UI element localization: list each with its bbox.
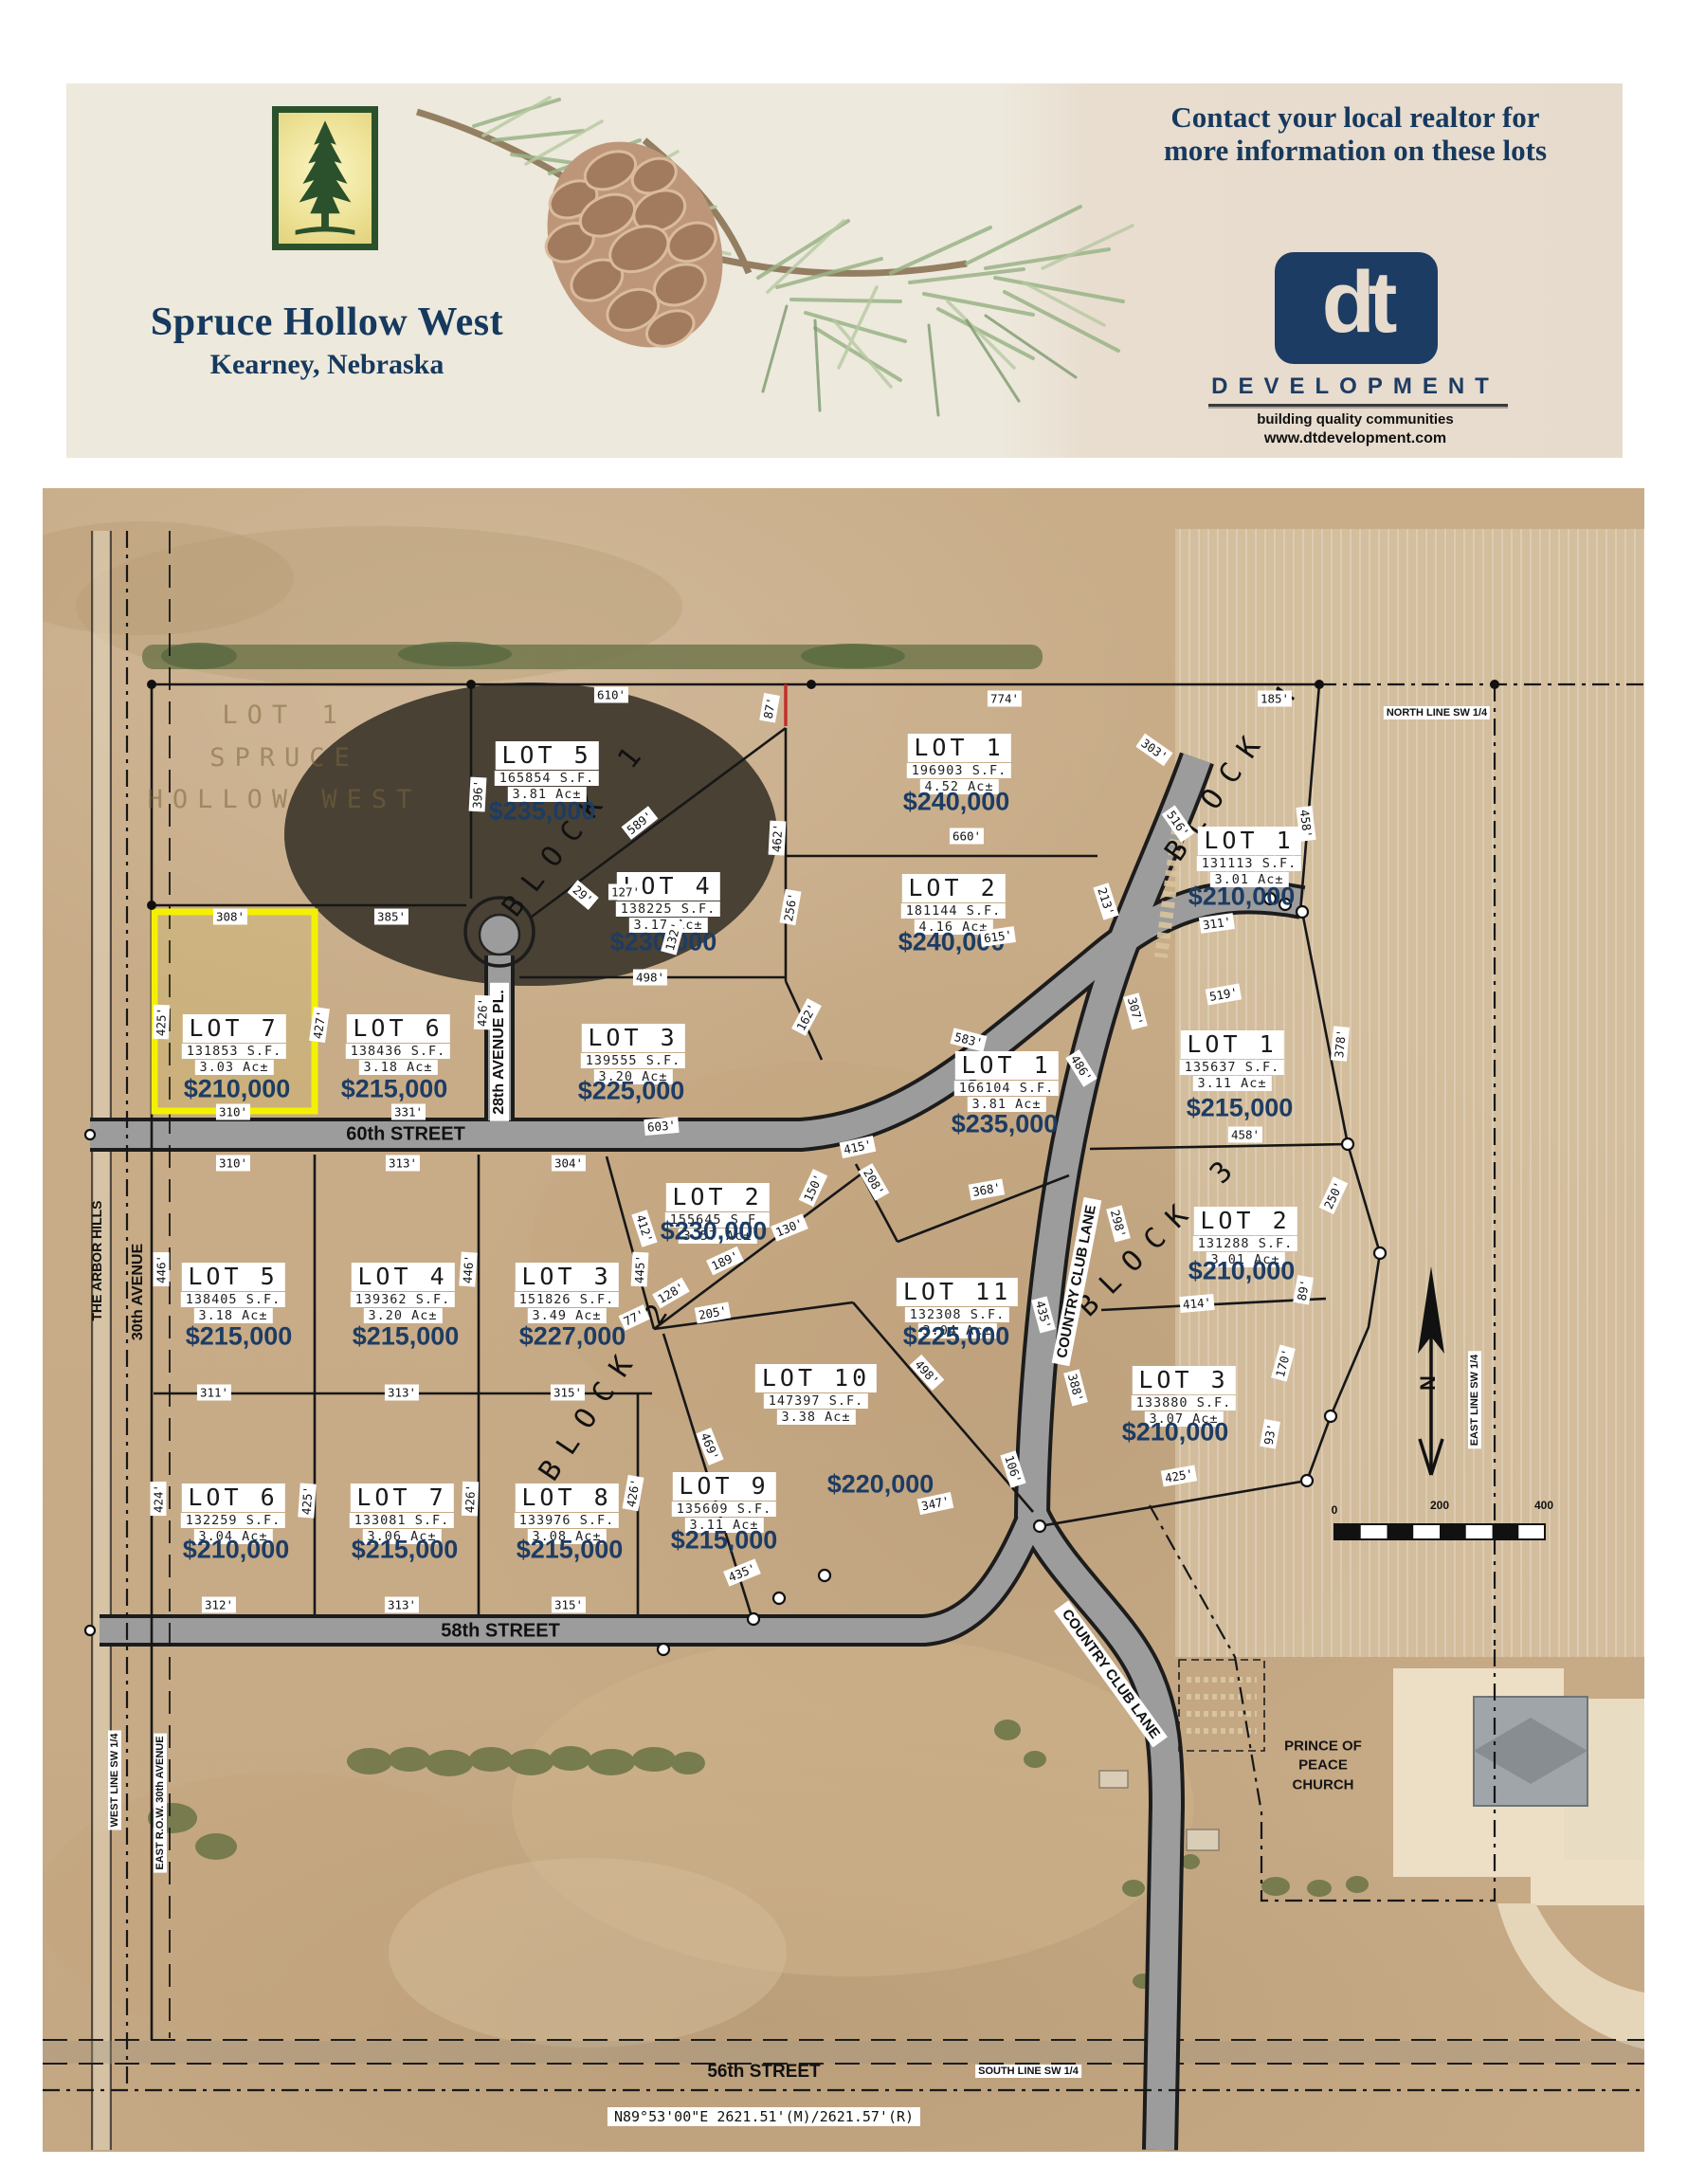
lot-price: $227,000: [519, 1322, 626, 1352]
lot-price: $210,000: [1122, 1418, 1229, 1447]
street-label: 58th STREET: [441, 1621, 560, 1643]
boundary-label: SOUTH LINE SW 1/4: [975, 2065, 1081, 2078]
street-label: THE ARBOR HILLS: [89, 1200, 104, 1320]
lot-number: LOT 3: [515, 1263, 618, 1291]
dimension-label: 446': [154, 1252, 170, 1286]
lot-number: LOT 3: [1132, 1366, 1235, 1394]
dimension-label: 426': [462, 1482, 479, 1517]
lot-number: LOT 7: [350, 1483, 453, 1512]
lot-acres: 3.38 Ac±: [776, 1410, 855, 1425]
spruce-tree-logo-icon: [272, 106, 378, 250]
dt-development-logo: dt: [1275, 252, 1438, 364]
dt-tagline: building quality communities: [1194, 411, 1516, 428]
dimension-label: 660': [950, 828, 984, 845]
lot-number: LOT 5: [181, 1263, 284, 1291]
dt-website: www.dtdevelopment.com: [1194, 430, 1516, 447]
dt-company-name: DEVELOPMENT: [1194, 373, 1516, 400]
lot-label: LOT 4139362 S.F.3.20 Ac±: [351, 1263, 455, 1323]
development-title: Spruce Hollow West: [104, 300, 550, 345]
header: Spruce Hollow West Kearney, Nebraska: [66, 83, 1623, 458]
lot-sqft: 135609 S.F.: [672, 1501, 776, 1517]
lot-number: LOT 6: [181, 1483, 284, 1512]
lot-number: LOT 11: [897, 1278, 1018, 1306]
lot-sqft: 151826 S.F.: [515, 1292, 619, 1307]
pine-branch-illustration: [360, 83, 1147, 458]
dimension-label: 774': [988, 691, 1022, 707]
lot-sqft: 135637 S.F.: [1180, 1060, 1284, 1075]
dimension-label: 446': [459, 1251, 477, 1286]
lot-label: LOT 5138405 S.F.3.18 Ac±: [181, 1263, 285, 1323]
lot-label: LOT 1135637 S.F.3.11 Ac±: [1180, 1030, 1284, 1091]
dimension-label: 603': [644, 1117, 679, 1136]
lot-label: LOT 3139555 S.F.3.20 Ac±: [581, 1024, 685, 1084]
lot-sqft: 139362 S.F.: [351, 1292, 455, 1307]
lot-price: $235,000: [952, 1110, 1059, 1139]
lot-price: $215,000: [517, 1536, 624, 1565]
lot-number: LOT 4: [351, 1263, 454, 1291]
dimension-label: 127': [608, 884, 643, 901]
flyer-page: Spruce Hollow West Kearney, Nebraska: [0, 0, 1687, 2184]
lot-number: LOT 6: [346, 1014, 449, 1043]
lot-price: $220,000: [827, 1470, 934, 1500]
dimension-label: 462': [769, 821, 787, 856]
north-label: N: [1416, 1375, 1441, 1391]
lot-label: LOT 10147397 S.F.3.38 Ac±: [755, 1364, 877, 1425]
scale-tick: 400: [1534, 1499, 1553, 1512]
dimension-label: 424': [151, 1482, 167, 1516]
church-label: PRINCE OFPEACECHURCH: [1284, 1738, 1362, 1795]
lot-label: LOT 3151826 S.F.3.49 Ac±: [515, 1263, 619, 1323]
bearing-label: N89°53'00"E 2621.51'(M)/2621.57'(R): [608, 2107, 920, 2126]
lot-sqft: 131853 S.F.: [182, 1044, 286, 1059]
lot-label: LOT 2181144 S.F.4.16 Ac±: [901, 874, 1006, 935]
lot-label: LOT 1131113 S.F.3.01 Ac±: [1197, 827, 1301, 887]
lot-price: $225,000: [903, 1322, 1010, 1352]
lot-acres: 3.03 Ac±: [194, 1060, 273, 1075]
dimension-label: 498': [633, 970, 667, 986]
scale-tick: 0: [1332, 1503, 1338, 1517]
lot-label: LOT 5165854 S.F.3.81 Ac±: [495, 741, 599, 802]
lot-sqft: 166104 S.F.: [954, 1081, 1059, 1096]
lot-sqft: 196903 S.F.: [907, 763, 1011, 778]
lot-number: LOT 3: [581, 1024, 684, 1052]
boundary-label: NORTH LINE SW 1/4: [1384, 706, 1490, 719]
lot-sqft: 138225 S.F.: [616, 901, 720, 917]
dimension-label: 315': [552, 1597, 586, 1613]
lot-label: LOT 6138436 S.F.3.18 Ac±: [346, 1014, 450, 1075]
dimension-label: 378': [1331, 1026, 1350, 1061]
dt-divider: [1208, 404, 1508, 407]
dimension-label: 310': [216, 1156, 250, 1172]
boundary-label: EAST R.O.W. 30th AVENUE: [154, 1733, 167, 1872]
lot-sqft: 133880 S.F.: [1132, 1395, 1236, 1410]
lot-price: $215,000: [671, 1526, 778, 1556]
lot-number: LOT 1: [954, 1051, 1058, 1080]
lot-number: LOT 1: [1180, 1030, 1283, 1059]
lot-number: LOT 9: [672, 1472, 775, 1501]
lot-number: LOT 8: [515, 1483, 618, 1512]
dimension-label: 304': [552, 1156, 586, 1172]
contact-note: Contact your local realtor for more info…: [1061, 100, 1649, 168]
dimension-label: 445': [631, 1252, 649, 1287]
lot-price: $210,000: [183, 1536, 290, 1565]
lot-sqft: 138436 S.F.: [346, 1044, 450, 1059]
boundary-label: EAST LINE SW 1/4: [1468, 1352, 1481, 1449]
dimension-label: 426': [474, 995, 491, 1030]
lot-price: $210,000: [184, 1075, 291, 1104]
scale-tick: 200: [1430, 1499, 1449, 1512]
dt-logo-glyph: dt: [1322, 253, 1391, 353]
lot-number: LOT 5: [495, 741, 598, 770]
lot-label: LOT 9135609 S.F.3.11 Ac±: [672, 1472, 776, 1533]
lot-sqft: 138405 S.F.: [181, 1292, 285, 1307]
lot-sqft: 131288 S.F.: [1193, 1236, 1297, 1251]
dimension-label: 414': [1179, 1294, 1214, 1313]
ghost-parcel-label: LOT 1SPRUCEHOLLOW WEST: [148, 695, 422, 822]
lot-sqft: 133081 S.F.: [350, 1513, 454, 1528]
street-label: 60th STREET: [346, 1124, 465, 1146]
lot-sqft: 147397 S.F.: [764, 1393, 868, 1409]
street-label: 30th AVENUE: [130, 1244, 147, 1340]
lot-sqft: 132259 S.F.: [181, 1513, 285, 1528]
contact-line-1: Contact your local realtor for: [1061, 100, 1649, 134]
dimension-label: 313': [385, 1385, 419, 1401]
dimension-label: 315': [551, 1385, 585, 1401]
dimension-label: 610': [594, 687, 628, 703]
dimension-label: 313': [385, 1597, 419, 1613]
lot-number: LOT 2: [1193, 1207, 1297, 1235]
spruce-tree-icon: [279, 113, 372, 244]
lot-price: $225,000: [578, 1077, 685, 1106]
lot-sqft: 139555 S.F.: [581, 1053, 685, 1068]
dimension-label: 458': [1228, 1127, 1262, 1143]
lot-price: $230,000: [661, 1217, 768, 1247]
lot-price: $215,000: [186, 1322, 293, 1352]
lot-label: LOT 7131853 S.F.3.03 Ac±: [182, 1014, 286, 1075]
lot-number: LOT 10: [755, 1364, 877, 1392]
dimension-label: 331': [391, 1104, 426, 1120]
lot-price: $235,000: [489, 797, 596, 827]
lot-label: LOT 1196903 S.F.4.52 Ac±: [907, 734, 1011, 794]
lot-number: LOT 7: [182, 1014, 285, 1043]
dimension-label: 308': [213, 909, 247, 925]
lot-sqft: 133976 S.F.: [515, 1513, 619, 1528]
lot-sqft: 132308 S.F.: [905, 1307, 1009, 1322]
dimension-label: 313': [386, 1156, 420, 1172]
contact-line-2: more information on these lots: [1061, 134, 1649, 167]
development-location: Kearney, Nebraska: [104, 349, 550, 381]
lot-price: $210,000: [1188, 883, 1296, 912]
lot-number: LOT 2: [665, 1183, 769, 1211]
dimension-label: 310': [216, 1104, 250, 1120]
lot-number: LOT 2: [901, 874, 1005, 902]
lot-label: LOT 1166104 S.F.3.81 Ac±: [954, 1051, 1059, 1112]
dimension-label: 385': [374, 909, 408, 925]
dimension-label: 396': [469, 777, 487, 812]
lot-sqft: 181144 S.F.: [901, 903, 1006, 919]
lot-price: $215,000: [353, 1322, 460, 1352]
dimension-label: 425': [153, 1005, 170, 1040]
boundary-label: WEST LINE SW 1/4: [108, 1730, 121, 1829]
dimension-label: 185': [1258, 691, 1292, 707]
street-label: 28th AVENUE PL.: [490, 983, 509, 1121]
dimension-label: 425': [298, 1483, 316, 1518]
lot-price: $215,000: [352, 1536, 459, 1565]
lot-price: $215,000: [341, 1075, 448, 1104]
lot-price: $210,000: [1188, 1257, 1296, 1286]
lot-number: LOT 1: [1197, 827, 1300, 855]
lot-price: $240,000: [903, 788, 1010, 817]
lot-sqft: 131113 S.F.: [1197, 856, 1301, 871]
dimension-label: 311': [197, 1385, 231, 1401]
lot-acres: 3.11 Ac±: [1192, 1076, 1271, 1091]
dimension-label: 312': [202, 1597, 236, 1613]
lot-price: $215,000: [1187, 1094, 1294, 1123]
lot-sqft: 165854 S.F.: [495, 771, 599, 786]
lot-number: LOT 1: [907, 734, 1010, 762]
lot-acres: 3.18 Ac±: [358, 1060, 437, 1075]
street-label: 56th STREET: [707, 2062, 820, 2083]
